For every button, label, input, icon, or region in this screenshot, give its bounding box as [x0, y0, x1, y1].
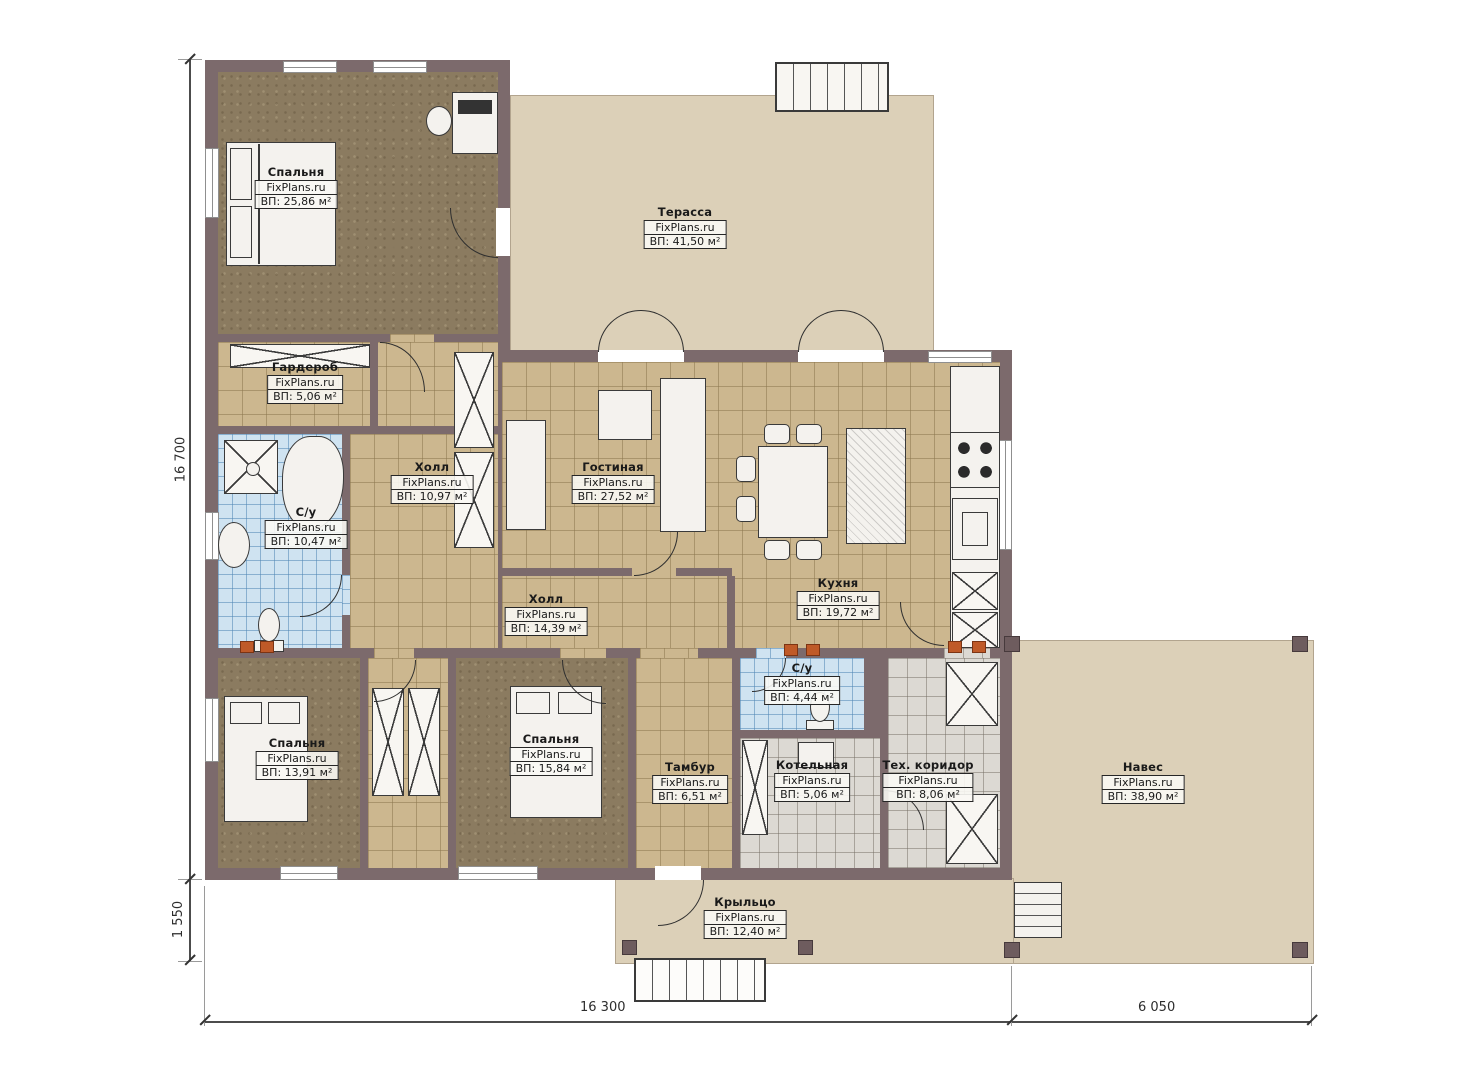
window-left-3 — [205, 698, 219, 762]
room-name: С/у — [764, 661, 840, 675]
closet-between-bedrooms-2 — [408, 688, 440, 796]
floor-plan-canvas: Спальня FixPlans.ru ВП: 25,86 м² Терасса… — [0, 0, 1473, 1080]
watermark: FixPlans.ru — [797, 591, 880, 606]
room-label-hall-1: Холл FixPlans.ru ВП: 10,97 м² — [391, 460, 474, 504]
hall-closet-1 — [454, 352, 494, 448]
room-label-terrace: Терасса FixPlans.ru ВП: 41,50 м² — [644, 205, 727, 249]
ext-line-1 — [204, 886, 205, 1026]
door-gap-bedroom2 — [374, 648, 414, 658]
room-area: ВП: 6,51 м² — [652, 790, 728, 804]
watermark: FixPlans.ru — [764, 676, 840, 691]
dim-text-bottom-main: 16 300 — [580, 1000, 626, 1015]
room-label-tech-corridor: Тех. коридор FixPlans.ru ВП: 8,06 м² — [882, 758, 973, 802]
room-label-bathroom-2: С/у FixPlans.ru ВП: 4,44 м² — [764, 661, 840, 705]
room-name: Тех. коридор — [882, 758, 973, 772]
dim-line-bottom-main — [205, 1021, 1012, 1023]
watermark: FixPlans.ru — [572, 475, 655, 490]
room-label-wardrobe: Гардероб FixPlans.ru ВП: 5,06 м² — [267, 360, 343, 404]
room-name: Холл — [391, 460, 474, 474]
room-name: Крыльцо — [704, 895, 787, 909]
room-area: ВП: 10,97 м² — [391, 490, 474, 504]
wall-bedroom3-right — [628, 658, 636, 868]
room-label-bedroom-3: Спальня FixPlans.ru ВП: 15,84 м² — [510, 732, 593, 776]
closet-between-bedrooms-1 — [372, 688, 404, 796]
boiler-closet — [742, 740, 768, 835]
vent-marker-1a — [240, 641, 254, 653]
watermark: FixPlans.ru — [1102, 775, 1185, 790]
dining-table — [758, 446, 828, 538]
room-label-bedroom-2: Спальня FixPlans.ru ВП: 13,91 м² — [256, 736, 339, 780]
ext-line-6 — [178, 961, 202, 962]
porch-post-1 — [622, 940, 637, 955]
room-area: ВП: 10,47 м² — [265, 535, 348, 549]
watermark: FixPlans.ru — [704, 910, 787, 925]
wall-bedroom2-right — [360, 658, 368, 868]
room-label-hall-2: Холл FixPlans.ru ВП: 14,39 м² — [505, 592, 588, 636]
door-gap-bathroom1 — [342, 575, 350, 615]
watermark: FixPlans.ru — [255, 180, 338, 195]
room-area: ВП: 4,44 м² — [764, 691, 840, 705]
watermark: FixPlans.ru — [652, 775, 728, 790]
room-label-boiler-room: Котельная FixPlans.ru ВП: 5,06 м² — [774, 758, 850, 802]
dim-line-left-main — [189, 60, 191, 880]
dim-tick-4 — [199, 1014, 210, 1025]
wall-wardrobe-right — [370, 342, 378, 434]
room-label-vestibule: Тамбур FixPlans.ru ВП: 6,51 м² — [652, 760, 728, 804]
room-label-porch: Крыльцо FixPlans.ru ВП: 12,40 м² — [704, 895, 787, 939]
watermark: FixPlans.ru — [774, 773, 850, 788]
bedroom1-terrace-door-gap — [496, 208, 510, 256]
door-gap-bedroom3 — [560, 648, 606, 658]
chair-6 — [736, 496, 756, 522]
dim-line-bottom-canopy — [1012, 1021, 1312, 1023]
bed1-pillow-2 — [230, 206, 252, 258]
stove-burners — [950, 432, 1000, 488]
room-label-living-room: Гостиная FixPlans.ru ВП: 27,52 м² — [572, 460, 655, 504]
room-area: ВП: 5,06 м² — [267, 390, 343, 404]
room-name: Спальня — [510, 732, 593, 746]
room-label-kitchen: Кухня FixPlans.ru ВП: 19,72 м² — [797, 576, 880, 620]
vent-marker-3a — [948, 641, 962, 653]
door-gap-bathroom2 — [756, 648, 786, 658]
toilet1-bowl — [258, 608, 280, 642]
porch-steps — [634, 958, 766, 1002]
bed3-pillow-1 — [516, 692, 550, 714]
chair-1 — [764, 424, 790, 444]
watermark: FixPlans.ru — [505, 607, 588, 622]
wall-bathroom2-right — [864, 658, 872, 730]
room-label-canopy: Навес FixPlans.ru ВП: 38,90 м² — [1102, 760, 1185, 804]
window-bottom-2 — [458, 866, 538, 880]
room-area: ВП: 8,06 м² — [882, 788, 973, 802]
room-area: ВП: 25,86 м² — [255, 195, 338, 209]
shower-drain — [246, 462, 260, 476]
room-area: ВП: 41,50 м² — [644, 235, 727, 249]
room-label-bedroom-1: Спальня FixPlans.ru ВП: 25,86 м² — [255, 165, 338, 209]
room-name: Гардероб — [267, 360, 343, 374]
chair-4 — [796, 540, 822, 560]
watermark: FixPlans.ru — [256, 751, 339, 766]
desk-chair — [426, 106, 452, 136]
window-left-2 — [205, 512, 219, 560]
room-label-bathroom-1: С/у FixPlans.ru ВП: 10,47 м² — [265, 505, 348, 549]
room-area: ВП: 14,39 м² — [505, 622, 588, 636]
bed2-pillow-1 — [230, 702, 262, 724]
window-top-2 — [373, 61, 427, 73]
room-name: С/у — [265, 505, 348, 519]
room-area: ВП: 38,90 м² — [1102, 790, 1185, 804]
vent-marker-3b — [972, 641, 986, 653]
tech-corridor-shaft-2 — [946, 794, 998, 864]
bathroom1-sink — [218, 522, 250, 568]
room-name: Спальня — [255, 165, 338, 179]
wall-bedroom1-b — [434, 334, 498, 342]
canopy-post-4 — [1004, 942, 1020, 958]
wall-hall-kitchen — [727, 576, 735, 648]
front-door-gap — [655, 866, 701, 880]
dim-text-left-porch: 1 550 — [171, 901, 186, 938]
room-name: Котельная — [774, 758, 850, 772]
wall-bathroom1-b — [342, 615, 350, 648]
watermark: FixPlans.ru — [267, 375, 343, 390]
chair-5 — [736, 456, 756, 482]
wall-hall-living-a — [502, 568, 632, 576]
room-area: ВП: 19,72 м² — [797, 606, 880, 620]
wall-bedroom3-left — [448, 658, 456, 868]
bed2-pillow-2 — [268, 702, 300, 724]
window-kitchen-top — [928, 351, 992, 363]
kitchen-appliance-1 — [952, 572, 998, 610]
room-area: ВП: 12,40 м² — [704, 925, 787, 939]
tech-corridor-shaft-1 — [946, 662, 998, 726]
coffee-table — [598, 390, 652, 440]
canopy-post-1 — [1004, 636, 1020, 652]
room-area: ВП: 27,52 м² — [572, 490, 655, 504]
dim-tick-6 — [1306, 1014, 1317, 1025]
room-name: Тамбур — [652, 760, 728, 774]
sofa — [506, 420, 546, 530]
door-gap-bedroom1 — [390, 334, 434, 342]
room-name: Гостиная — [572, 460, 655, 474]
room-name: Спальня — [256, 736, 339, 750]
room-name: Кухня — [797, 576, 880, 590]
wall-bedroom1-a — [218, 334, 385, 342]
canopy-steps — [1014, 882, 1062, 938]
porch-post-2 — [798, 940, 813, 955]
wall-bathroom2-bottom — [740, 730, 864, 738]
vent-marker-2a — [784, 644, 798, 656]
dim-tick-5 — [1006, 1014, 1017, 1025]
monitor — [458, 100, 492, 114]
kitchen-island — [846, 428, 906, 544]
canopy-post-2 — [1292, 636, 1308, 652]
tv-unit — [660, 378, 706, 532]
room-area: ВП: 13,91 м² — [256, 766, 339, 780]
canopy-post-3 — [1292, 942, 1308, 958]
wall-hall-living-b — [676, 568, 732, 576]
terrace-roof-hatch — [775, 62, 889, 112]
bed1-pillow-1 — [230, 148, 252, 200]
watermark: FixPlans.ru — [510, 747, 593, 762]
dim-text-left-main: 16 700 — [173, 437, 188, 483]
room-name: Навес — [1102, 760, 1185, 774]
wall-boiler-right-b — [880, 828, 888, 868]
dim-text-bottom-canopy: 6 050 — [1138, 1000, 1175, 1015]
vent-marker-2b — [806, 644, 820, 656]
wall-vestibule-right — [732, 658, 740, 868]
wall-wardrobe-bottom — [218, 426, 350, 434]
chair-2 — [796, 424, 822, 444]
vent-marker-1b — [260, 641, 274, 653]
dim-line-left-porch — [189, 880, 191, 962]
watermark: FixPlans.ru — [882, 773, 973, 788]
watermark: FixPlans.ru — [644, 220, 727, 235]
window-bottom-1 — [280, 866, 338, 880]
window-right-kitchen — [998, 440, 1012, 550]
room-area: ВП: 5,06 м² — [774, 788, 850, 802]
window-top-1 — [283, 61, 337, 73]
watermark: FixPlans.ru — [391, 475, 474, 490]
opening-vestibule — [640, 648, 698, 658]
room-area: ВП: 15,84 м² — [510, 762, 593, 776]
chair-3 — [764, 540, 790, 560]
room-name: Холл — [505, 592, 588, 606]
watermark: FixPlans.ru — [265, 520, 348, 535]
window-left-1 — [205, 148, 219, 218]
room-name: Терасса — [644, 205, 727, 219]
kitchen-sink-basin — [962, 512, 988, 546]
